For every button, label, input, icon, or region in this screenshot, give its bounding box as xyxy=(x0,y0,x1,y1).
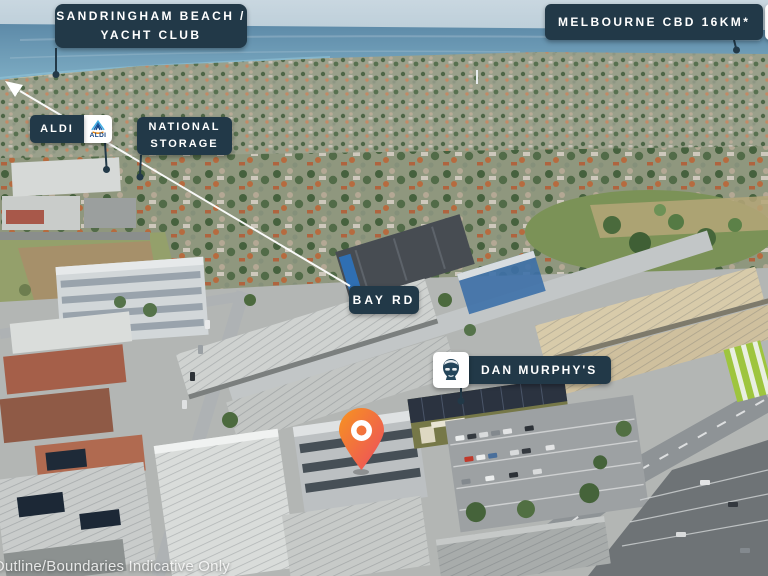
aldi-logo-wordmark: ALDI xyxy=(90,132,107,139)
label-sandringham-line1: SANDRINGHAM BEACH / xyxy=(56,7,246,26)
label-national-storage: NATIONAL STORAGE xyxy=(137,117,232,155)
label-bay-rd: BAY RD xyxy=(349,286,419,314)
label-aldi-text: ALDI xyxy=(40,123,74,135)
label-group-melbourne-cbd: MELBOURNE CBD 16KM* xyxy=(545,4,768,40)
label-sandringham-line2: YACHT CLUB xyxy=(101,26,202,45)
label-aldi: ALDI xyxy=(30,115,84,143)
aerial-map: SANDRINGHAM BEACH / YACHT CLUB MELBOURNE… xyxy=(0,0,768,576)
label-group-dan-murphys: DAN MURPHY'S xyxy=(433,352,611,388)
label-sandringham-beach: SANDRINGHAM BEACH / YACHT CLUB xyxy=(55,4,247,48)
label-national-storage-line2: STORAGE xyxy=(150,136,218,153)
label-dan-murphys-text: DAN MURPHY'S xyxy=(481,363,597,377)
label-bay-rd-text: BAY RD xyxy=(353,293,416,307)
label-melbourne-cbd: MELBOURNE CBD 16KM* xyxy=(545,4,763,40)
leader-lines xyxy=(56,40,736,399)
leader-dots xyxy=(53,47,741,405)
label-group-aldi: ALDI ALDI xyxy=(30,115,112,143)
label-melbourne-cbd-text: MELBOURNE CBD 16KM* xyxy=(558,15,750,29)
boundaries-disclaimer: Outline/Boundaries Indicative Only xyxy=(0,558,230,575)
dan-murphys-portrait-icon xyxy=(433,352,469,388)
label-national-storage-line1: NATIONAL xyxy=(148,119,220,136)
label-dan-murphys: DAN MURPHY'S xyxy=(465,356,611,384)
direction-arrow-icon xyxy=(5,81,23,97)
location-pin-icon xyxy=(339,408,384,475)
route-to-beach-line xyxy=(5,81,350,286)
aldi-logo-icon: ALDI xyxy=(84,115,112,143)
